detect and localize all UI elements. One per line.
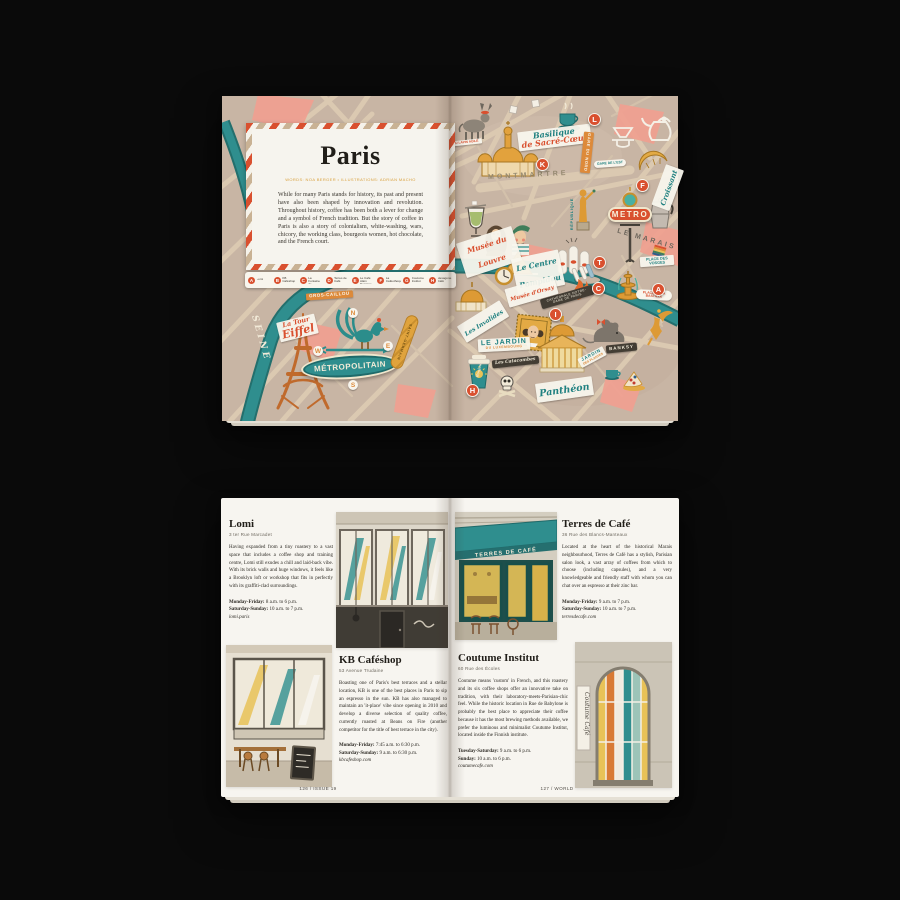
legend-name: La Fontaine de Belleville bbox=[308, 277, 323, 284]
cafe-description: Located at the heart of the historical M… bbox=[562, 544, 672, 591]
hours-label: Monday-Friday: bbox=[562, 600, 598, 605]
page-background: SEINE GROS-CAILLOU La Tour Eiffel MÉTROP… bbox=[0, 0, 900, 900]
legend-item: ELe Café Alain Ducasse bbox=[352, 277, 376, 284]
label-republique: RÉPUBLIQUE bbox=[570, 198, 574, 230]
kb-cafeshop-illustration bbox=[226, 645, 332, 787]
map-badge-h: H bbox=[466, 384, 479, 397]
hours-label: Monday-Friday: bbox=[229, 600, 265, 605]
legend-item: GCoutume Institut bbox=[403, 277, 427, 284]
coutume-sign-text: Coutume Café bbox=[583, 692, 590, 736]
intro-card: Paris WORDS: NOA BERGER • ILLUSTRATIONS:… bbox=[246, 123, 455, 270]
cafe-hours: Monday-Friday: 8 a.m. to 6 p.m. Saturday… bbox=[229, 599, 333, 614]
cafe-description: Having expanded from a tiny roastery to … bbox=[229, 544, 333, 591]
compass-west: W bbox=[313, 346, 323, 356]
coutume-institut-illustration: Coutume Café bbox=[575, 642, 672, 788]
byline: WORDS: NOA BERGER • ILLUSTRATIONS: ADRIA… bbox=[285, 177, 416, 182]
map-legend: ALomi BKB Caféshop CLa Fontaine de Belle… bbox=[245, 272, 456, 288]
cafe-description: Coutume means 'custom' in French, and th… bbox=[458, 678, 568, 740]
cafe-address: 36 Rue des Blancs-Manteaux bbox=[562, 532, 672, 537]
legend-name: Hexagone Café bbox=[438, 277, 453, 284]
compass-north: N bbox=[348, 308, 358, 318]
hours-value: 7:45 a.m. to 6:30 p.m. bbox=[376, 743, 420, 748]
legend-letter-badge: A bbox=[248, 277, 255, 284]
hours-label: Monday-Friday: bbox=[339, 743, 375, 748]
hours-label: Sunday: bbox=[458, 757, 476, 762]
espresso-cup-illustration bbox=[605, 370, 620, 380]
cafe-website: kbcafeshop.com bbox=[339, 758, 447, 763]
legend-letter-badge: H bbox=[429, 277, 436, 284]
legend-letter-badge: E bbox=[352, 277, 359, 284]
hours-value: 9 a.m. to 6 p.m. bbox=[500, 749, 531, 754]
legend-item: BKB Caféshop bbox=[274, 277, 298, 284]
map-badge-a: A bbox=[652, 283, 665, 296]
guide-spread: Lomi 3 ter Rue Marcadet Having expanded … bbox=[221, 498, 679, 797]
compass-east: E bbox=[383, 341, 393, 351]
hours-label: Saturday-Sunday: bbox=[339, 751, 378, 756]
entry-coutume-institut: Coutume Institut 60 Rue des Écoles Coutu… bbox=[458, 652, 568, 769]
map-badge-f: F bbox=[636, 179, 649, 192]
map-spread: SEINE GROS-CAILLOU La Tour Eiffel MÉTROP… bbox=[222, 96, 678, 420]
page-number-left: 126 / ISSUE 19 bbox=[288, 786, 348, 791]
legend-letter-badge: F bbox=[377, 277, 384, 284]
legend-letter-badge: D bbox=[326, 277, 333, 284]
lomi-illustration bbox=[336, 512, 448, 648]
legend-item: DTerres de Café bbox=[326, 277, 350, 284]
cafe-website: coutumecafe.com bbox=[458, 764, 568, 769]
legend-name: KB Caféshop bbox=[282, 277, 297, 284]
hours-value: 8 a.m. to 6 p.m. bbox=[266, 600, 297, 605]
cafe-name: Coutume Institut bbox=[458, 652, 568, 664]
cafe-name: Terres de Café bbox=[562, 518, 672, 530]
legend-name: Terres de Café bbox=[334, 277, 349, 284]
entry-terres-de-cafe: Terres de Café 36 Rue des Blancs-Manteau… bbox=[562, 518, 672, 620]
compass-south: S bbox=[348, 380, 358, 390]
legend-name: Le Café Alain Ducasse bbox=[360, 277, 375, 284]
map-badge-i: I bbox=[549, 308, 562, 321]
orsay-clock-illustration bbox=[496, 268, 512, 284]
map-badge-c: C bbox=[592, 282, 605, 295]
cafe-website: lomi.paris bbox=[229, 615, 333, 620]
hours-label: Saturday-Sunday: bbox=[562, 607, 601, 612]
cafe-address: 3 ter Rue Marcadet bbox=[229, 532, 333, 537]
hours-value: 9 a.m. to 6:30 p.m. bbox=[379, 751, 417, 756]
page-title: Paris bbox=[320, 141, 380, 171]
cafe-name: KB Caféshop bbox=[339, 654, 447, 666]
cafe-hours: Monday-Friday: 7:45 a.m. to 6:30 p.m. Sa… bbox=[339, 742, 447, 757]
cafe-name: Lomi bbox=[229, 518, 333, 530]
page-number-right: 127 / WORLD bbox=[527, 786, 587, 791]
cafe-address: 53 Avenue Trudaine bbox=[339, 668, 447, 673]
entry-kb-cafeshop: KB Caféshop 53 Avenue Trudaine Boasting … bbox=[339, 654, 447, 763]
cafe-hours: Tuesday-Saturday: 9 a.m. to 6 p.m. Sunda… bbox=[458, 748, 568, 763]
hours-value: 10 a.m. to 6 p.m. bbox=[477, 757, 511, 762]
legend-letter-badge: B bbox=[274, 277, 281, 284]
map-badge-l: L bbox=[588, 113, 601, 126]
legend-item: CLa Fontaine de Belleville bbox=[300, 277, 324, 284]
cafe-address: 60 Rue des Écoles bbox=[458, 666, 568, 671]
legend-item: FLa Caféothèque bbox=[377, 277, 401, 284]
legend-name: Coutume Institut bbox=[412, 277, 427, 284]
legend-name: Lomi bbox=[257, 278, 264, 281]
label-jardin-luxembourg: LE JARDIN DU LUXEMBOURG bbox=[478, 337, 531, 353]
legend-item: HHexagone Café bbox=[429, 277, 453, 284]
entry-lomi: Lomi 3 ter Rue Marcadet Having expanded … bbox=[229, 518, 333, 620]
hours-label: Saturday-Sunday: bbox=[229, 607, 268, 612]
intro-text: While for many Paris stands for history,… bbox=[278, 192, 423, 247]
page-stack-edge bbox=[231, 423, 669, 426]
legend-item: ALomi bbox=[248, 277, 272, 284]
hours-value: 10 a.m. to 7 p.m. bbox=[269, 607, 303, 612]
hours-value: 9 a.m. to 7 p.m. bbox=[599, 600, 630, 605]
hours-label: Tuesday-Saturday: bbox=[458, 749, 499, 754]
cafe-description: Boasting one of Paris's best terraces an… bbox=[339, 680, 447, 734]
cafe-hours: Monday-Friday: 9 a.m. to 7 p.m. Saturday… bbox=[562, 599, 672, 614]
page-stack-edge bbox=[230, 800, 670, 803]
hours-value: 10 a.m. to 7 p.m. bbox=[602, 607, 636, 612]
metro-sign: METRO bbox=[608, 207, 652, 222]
map-badge-t: T bbox=[593, 256, 606, 269]
legend-letter-badge: C bbox=[300, 277, 307, 284]
map-badge-k: K bbox=[536, 158, 549, 171]
legend-name: La Caféothèque bbox=[386, 277, 401, 284]
cafe-website: terresdecafe.com bbox=[562, 615, 672, 620]
terres-de-cafe-illustration: TERRES DE CAFÉ bbox=[455, 512, 557, 640]
legend-letter-badge: G bbox=[403, 277, 410, 284]
